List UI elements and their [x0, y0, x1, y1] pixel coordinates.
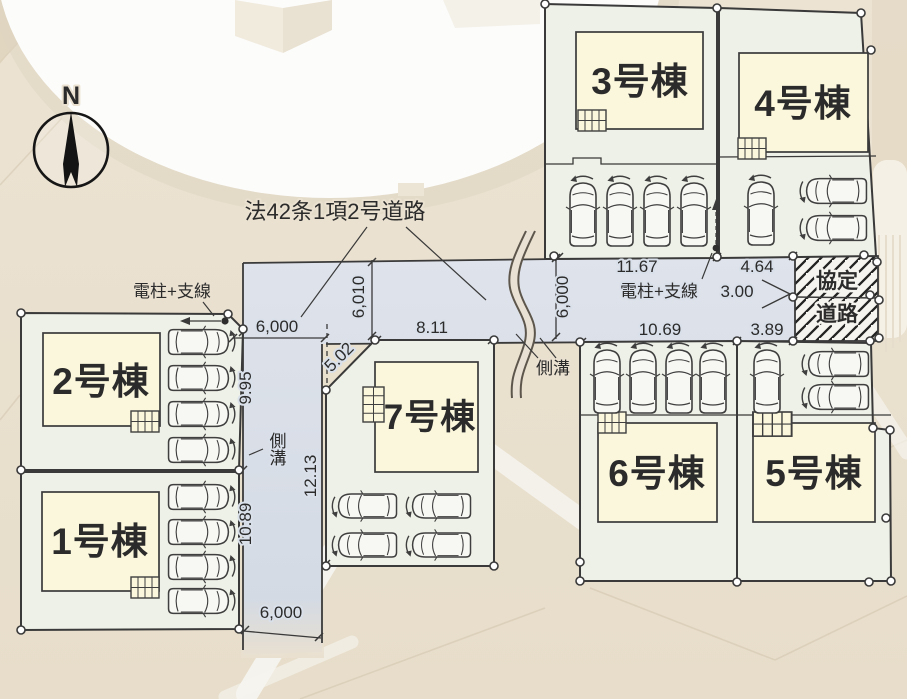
lot-4-label: 4号棟 — [754, 83, 852, 124]
dim-9-95: 9.95 — [236, 371, 255, 404]
dim-12-13: 12.13 — [301, 455, 320, 498]
gutter-left-label: 側溝 — [267, 432, 287, 466]
agreement-road-hatch — [795, 256, 878, 341]
dim-road-width-bottom: 6,000 — [260, 603, 303, 622]
porch-grid-icon — [753, 412, 792, 436]
dim-road-width-top: 6,000 — [256, 317, 299, 336]
dim-10-89: 10.89 — [236, 503, 255, 546]
porch-grid-icon — [363, 387, 384, 422]
lot-1-label: 1号棟 — [51, 521, 149, 562]
porch-grid-icon — [131, 411, 159, 432]
dim-4-64: 4.64 — [740, 257, 773, 276]
site-plan-drawing: 2号棟 1号棟 3号棟 4号棟 7号棟 6号棟 5号棟 — [0, 0, 907, 699]
lot-3-label: 3号棟 — [591, 61, 689, 102]
agreement-road-line1: 協定 — [816, 269, 858, 293]
utility-pole-left-label: 電柱+支線 — [133, 282, 211, 301]
road-name-label: 法42条1項2号道路 — [245, 199, 426, 224]
dim-6000-right: 6,000 — [553, 276, 572, 319]
lot-5-label: 5号棟 — [765, 453, 863, 494]
table-box-2 — [443, 0, 540, 28]
agreement-road-line2: 道路 — [816, 302, 859, 326]
porch-grid-icon — [598, 412, 626, 433]
lot-7-label: 7号棟 — [384, 398, 476, 437]
pole-symbol — [713, 245, 720, 252]
dim-3-89: 3.89 — [750, 320, 783, 339]
dim-10-69: 10.69 — [639, 320, 682, 339]
dim-11-67: 11.67 — [616, 257, 657, 276]
utility-pole-right-label: 電柱+支線 — [620, 282, 698, 301]
porch-grid-icon — [131, 577, 159, 598]
site-plan-page: 2号棟 1号棟 3号棟 4号棟 7号棟 6号棟 5号棟 — [0, 0, 907, 699]
gutter-mid-label: 側溝 — [536, 359, 570, 378]
porch-grid-icon — [738, 138, 766, 159]
table-leg — [398, 183, 424, 196]
dim-3-00: 3.00 — [720, 282, 753, 301]
lot-6-label: 6号棟 — [608, 453, 706, 494]
dim-6010: 6,010 — [349, 276, 368, 319]
lot-2-label: 2号棟 — [52, 361, 150, 402]
porch-grid-icon — [578, 110, 606, 131]
north-label: N — [62, 82, 80, 110]
dim-8-11: 8.11 — [416, 318, 448, 337]
